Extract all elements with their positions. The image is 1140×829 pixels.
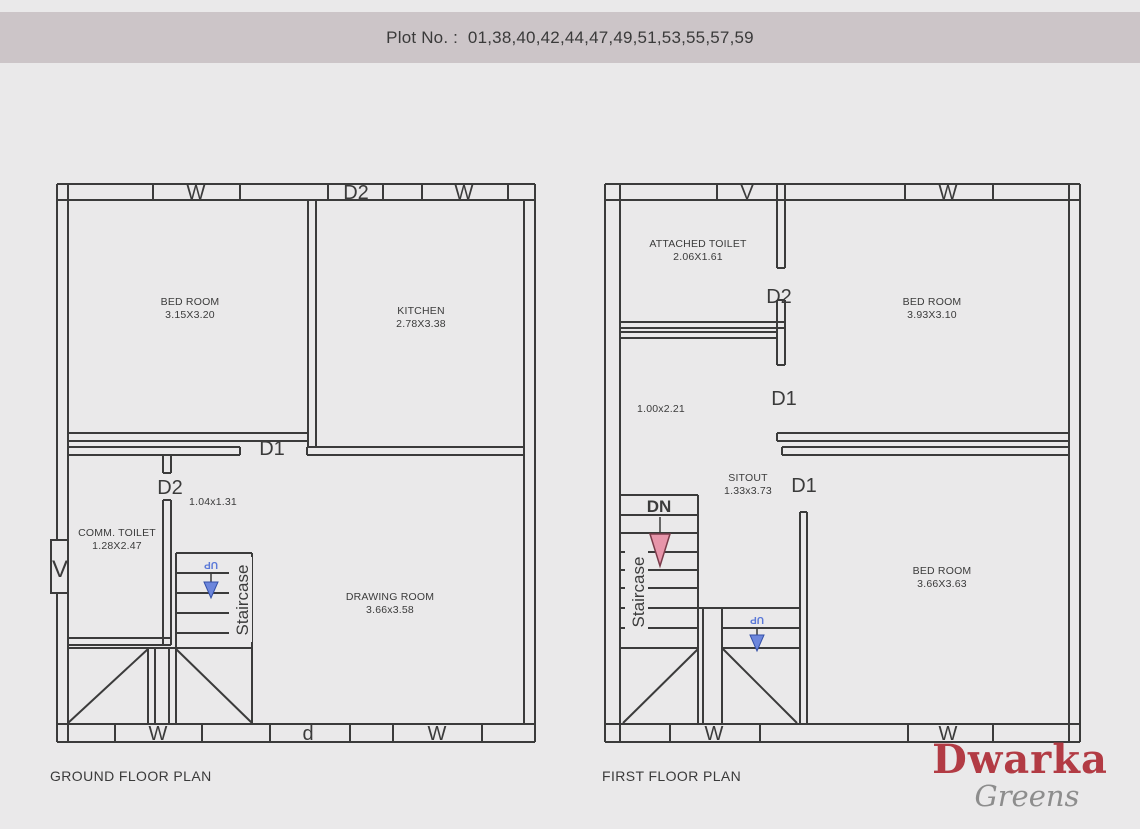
floor-plan-page: Plot No. : 01,38,40,42,44,47,49,51,53,55… [0,0,1140,829]
window-label: W [187,182,206,204]
room-dim-comm-toilet: 1.28X2.47 [92,540,142,552]
room-dim-attached-toilet: 2.06X1.61 [673,251,723,263]
window-label: W [705,723,724,745]
brand-logo: Dwarka Greens [928,740,1112,811]
room-dim-kitchen: 2.78X3.38 [396,318,446,330]
room-dim-bedroom: 3.15X3.20 [165,309,215,321]
brand-name: Dwarka [928,740,1112,780]
room-label-attached-toilet: ATTACHED TOILET [649,238,747,250]
up-arrow-icon [204,572,218,598]
room-label-bedroom: BED ROOM [161,296,220,308]
staircase-label: Staircase [629,557,648,628]
staircase-label: Staircase [233,565,252,636]
room-dim-bedroom-top: 3.93X3.10 [907,309,957,321]
ground-floor-title: GROUND FLOOR PLAN [50,768,212,784]
door-d1-upper-label: D1 [771,388,797,410]
window-label: W [428,723,447,745]
first-floor-plan: V W W W D2 D1 D1 ATTACHED TOILET 2.06X1.… [605,182,1080,745]
room-dim-bedroom-bottom: 3.66X3.63 [917,578,967,590]
ground-floor-plan: V W D2 W W d W D1 D2 BED ROOM 3.15X3.20 … [51,182,535,745]
door-d1-label: D1 [259,438,285,460]
room-label-sitout: SITOUT [728,472,768,484]
ventilator-label: V [52,556,68,583]
window-label: W [149,723,168,745]
first-floor-title: FIRST FLOOR PLAN [602,768,741,784]
room-label-bedroom-top: BED ROOM [903,296,962,308]
brand-subtitle: Greens [942,782,1112,811]
up-label: UP [750,614,764,625]
door-d2-label: D2 [766,286,792,308]
passage-dim-label: 1.00x2.21 [637,403,685,415]
dn-label: DN [647,497,672,516]
room-dim-drawing-room: 3.66x3.58 [366,604,414,616]
door-d2-label: D2 [157,477,183,499]
ground-floor-walls [57,184,535,742]
room-label-drawing-room: DRAWING ROOM [346,591,434,603]
up-label: UP [204,559,218,570]
first-floor-walls [605,184,1080,742]
door-d1-lower-label: D1 [791,475,817,497]
floor-plans-drawing: V W D2 W W d W D1 D2 BED ROOM 3.15X3.20 … [0,0,1140,829]
door-d2-top-label: D2 [343,182,369,204]
room-label-comm-toilet: COMM. TOILET [78,527,156,539]
main-door-label: d [302,723,313,745]
dn-arrow-icon [650,517,670,566]
passage-dim-label: 1.04x1.31 [189,496,237,508]
ventilator-label: V [740,182,754,204]
room-label-bedroom-bottom: BED ROOM [913,565,972,577]
window-label: W [455,182,474,204]
window-label: W [939,182,958,204]
room-dim-sitout: 1.33x3.73 [724,485,772,497]
room-label-kitchen: KITCHEN [397,305,445,317]
